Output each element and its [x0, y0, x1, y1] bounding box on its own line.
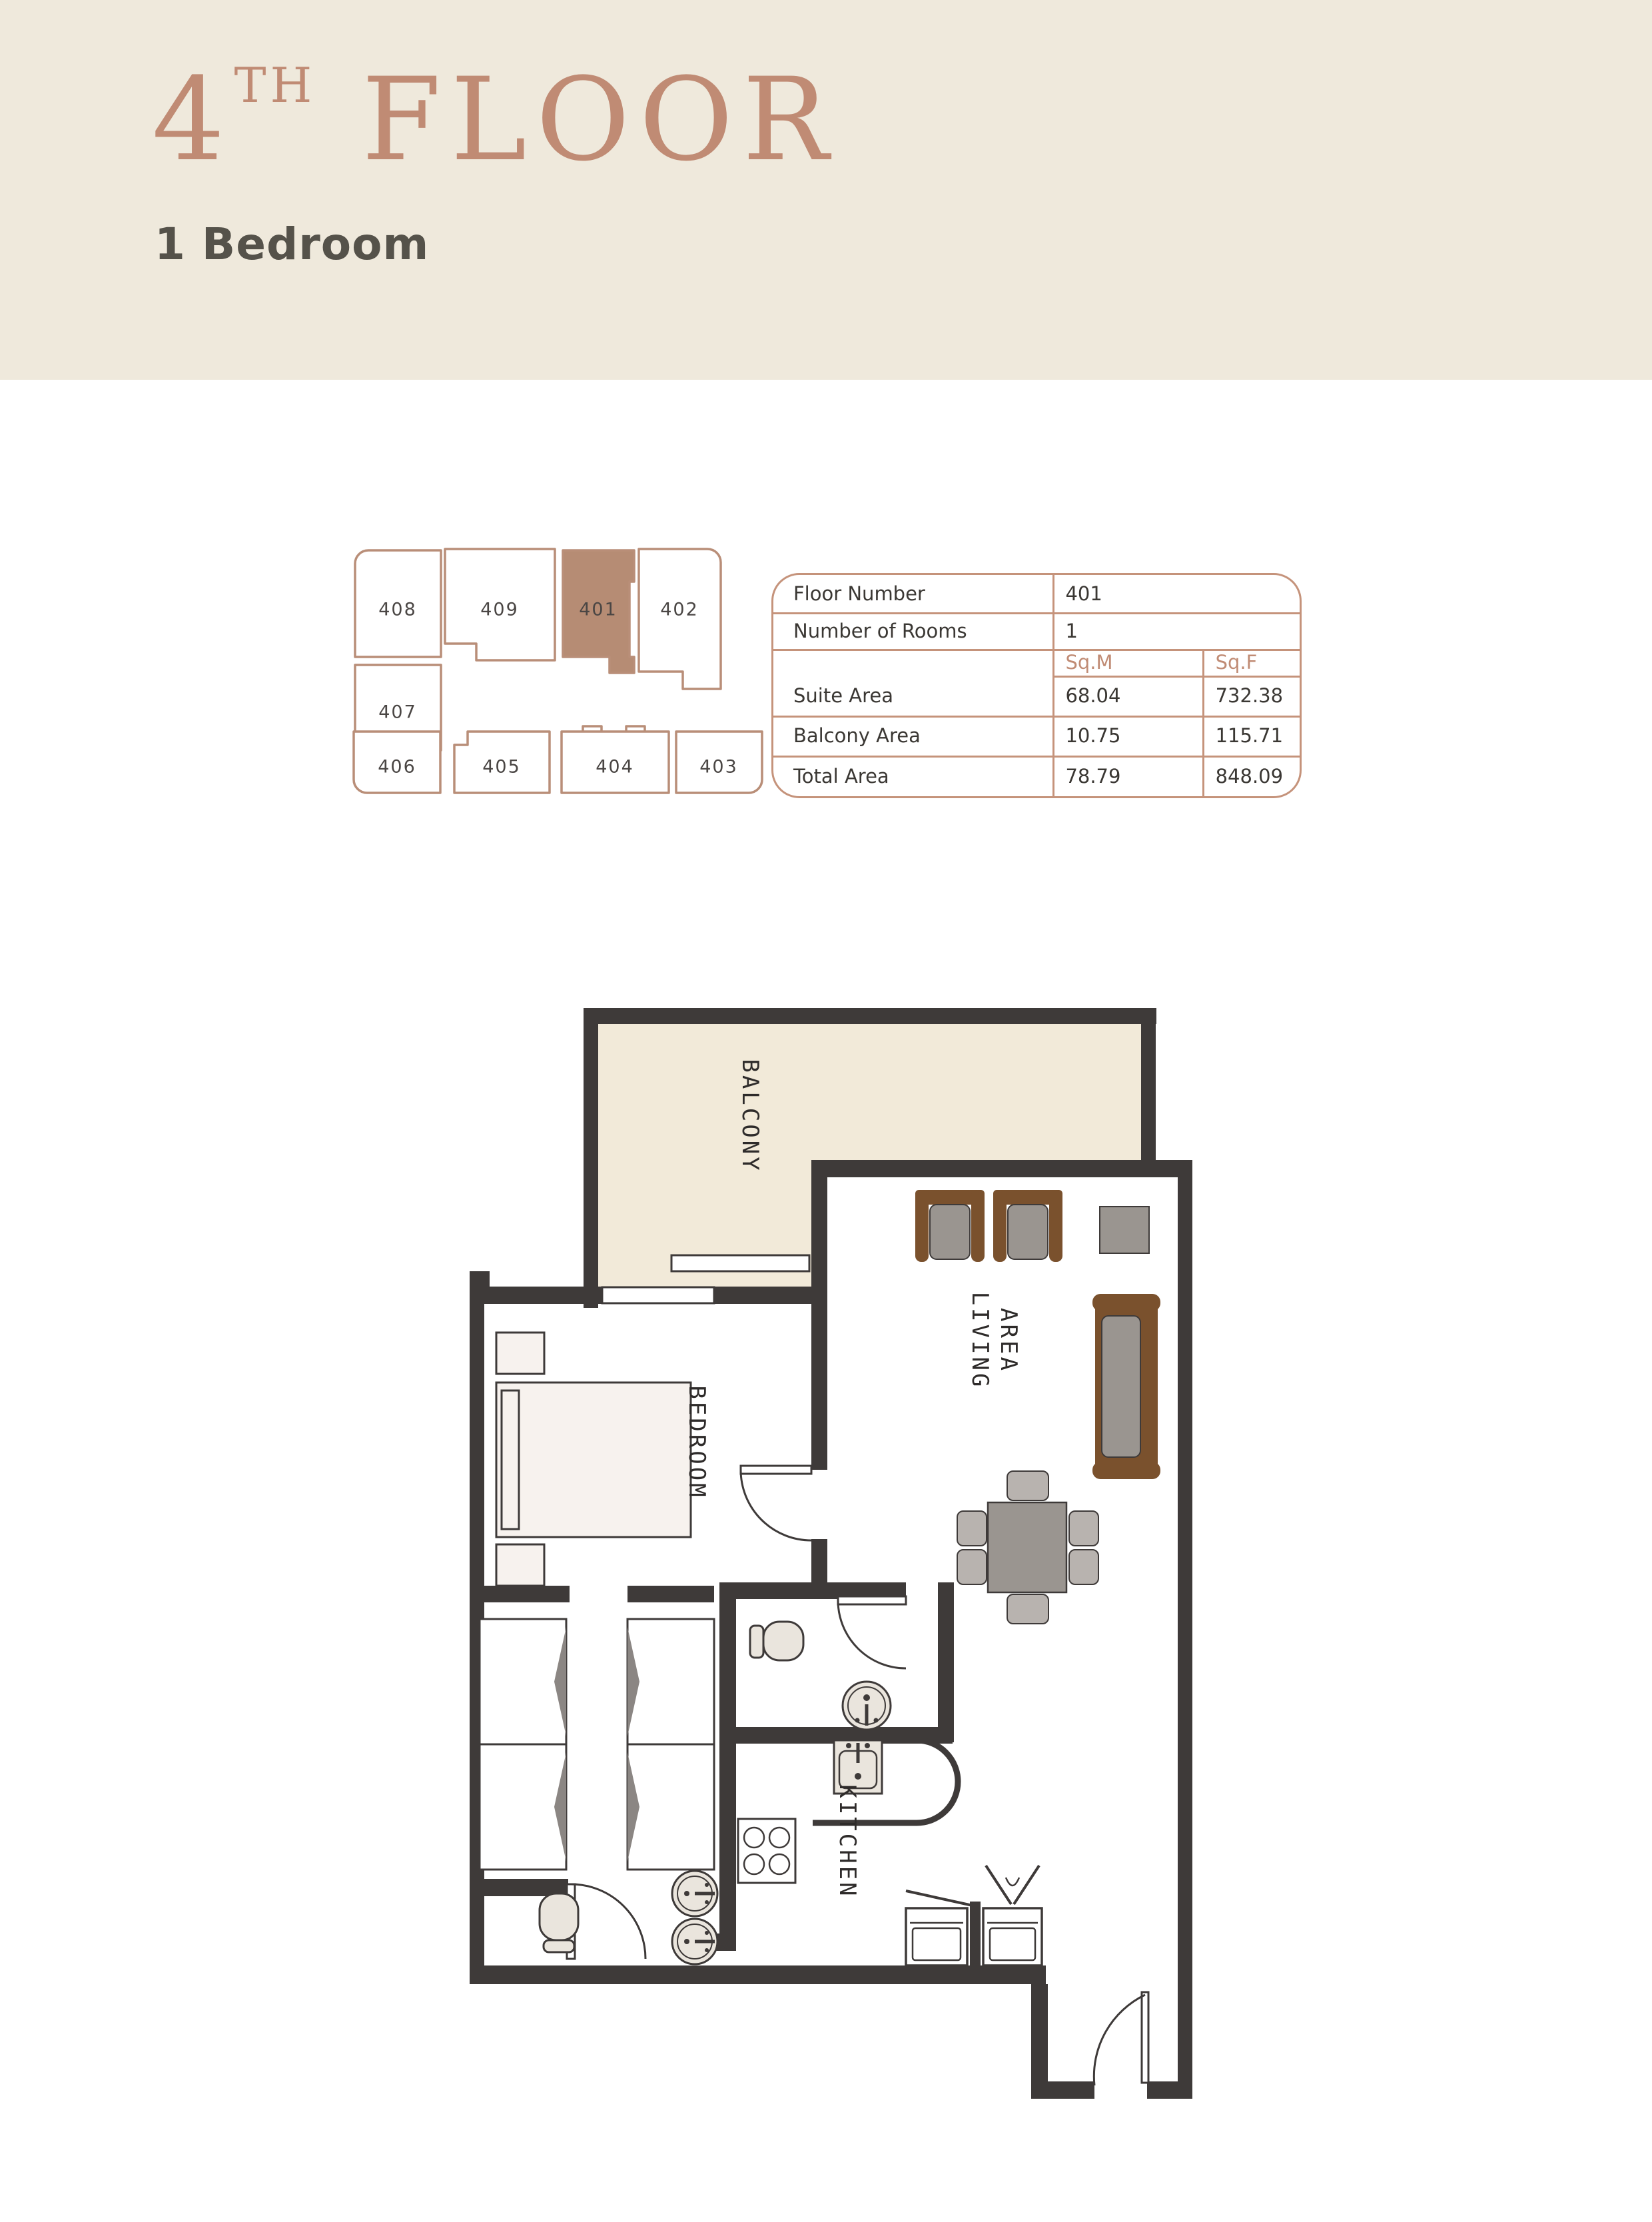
keyplan-label-404: 404 [596, 757, 634, 778]
drain-dot [855, 1773, 861, 1780]
living-furniture [915, 1190, 1160, 1624]
dining-chair [1069, 1550, 1098, 1584]
keyplan-label-408: 408 [378, 600, 417, 620]
wall-appliance-stub [970, 1902, 981, 1965]
floor-number-label: Floor Number [793, 575, 925, 612]
wall-bedroom-living-divider [811, 1177, 827, 1470]
rooms-value: 1 [1065, 612, 1077, 649]
dining-set [957, 1471, 1098, 1624]
keyplan-diagram: 408 409 401 402 407 406 405 404 403 [346, 545, 766, 798]
label-living-line1: LIVING [967, 1292, 993, 1390]
armchair [993, 1190, 1062, 1262]
stove [738, 1819, 795, 1883]
wall-balcony-top [584, 1008, 1156, 1024]
nightstand-bottom [496, 1544, 544, 1586]
ensuite-bathroom [750, 1622, 891, 1730]
wall-living-top [811, 1160, 1192, 1177]
toilet-tank [750, 1626, 763, 1658]
balcony-area-sqf: 115.71 [1216, 716, 1283, 756]
sqf-header: Sq.F [1216, 649, 1258, 676]
sqm-header: Sq.M [1065, 649, 1112, 676]
balcony-slider-window [671, 1255, 809, 1271]
title-ordinal-suffix: TH [234, 57, 316, 113]
balcony-area-sqm: 10.75 [1065, 716, 1120, 756]
label-balcony: BALCONY [737, 1059, 763, 1173]
dining-table [988, 1502, 1066, 1592]
dining-chair [957, 1550, 987, 1584]
total-area-sqf: 848.09 [1216, 756, 1283, 796]
label-bedroom: BEDROOM [683, 1385, 710, 1499]
title-word: FLOOR [316, 53, 838, 187]
wall-bedroom-bottom-right [627, 1586, 714, 1602]
wall-balcony-right [1141, 1024, 1156, 1161]
toilet-tank [544, 1940, 574, 1952]
title-floor-number: 4 [152, 53, 234, 187]
keyplan-label-405: 405 [482, 757, 521, 778]
armchair [915, 1190, 985, 1262]
dining-chair [1007, 1594, 1048, 1624]
rooms-label: Number of Rooms [793, 612, 967, 649]
faucet-dot [855, 1718, 860, 1723]
toilet-bowl [540, 1894, 578, 1940]
wall-corner-stub [470, 1271, 490, 1288]
dryer [983, 1908, 1042, 1965]
faucet-dot [846, 1743, 851, 1748]
side-table [1100, 1207, 1149, 1253]
bed-headboard [502, 1390, 519, 1529]
nightstand-top [496, 1333, 544, 1374]
wall-vestibule-left [1031, 1984, 1048, 2099]
closet-door-line [906, 1891, 973, 1906]
bedroom-door-leaf [741, 1466, 811, 1474]
bath2-door-arc [571, 1884, 645, 1959]
faucet-dot [874, 1718, 879, 1723]
wall-divider-below-door [811, 1539, 827, 1582]
table-divider [1052, 575, 1054, 796]
sofa [1092, 1294, 1160, 1479]
ensuite-door-arc [838, 1600, 906, 1668]
page-title: 4TH FLOOR [152, 40, 838, 200]
sink-unit [672, 1919, 717, 1964]
unit-info-table: Floor Number 401 Number of Rooms 1 Sq.M … [771, 573, 1302, 798]
wall-vestibule-bottom-left [1048, 2081, 1094, 2099]
dining-chair [1069, 1511, 1098, 1546]
washer [906, 1908, 967, 1965]
wall-main-bottom [470, 1965, 1046, 1984]
wardrobe [480, 1744, 566, 1870]
entrance-door-leaf [1142, 1992, 1148, 2083]
wall-ensuite-right [938, 1582, 954, 1742]
floorplan-drawing: BALCONY BEDROOM LIVING AREA KITCHEN [440, 953, 1192, 2105]
page-subtitle: 1 Bedroom [155, 219, 429, 270]
bedroom-door-arc [741, 1470, 811, 1540]
label-kitchen: KITCHEN [834, 1784, 861, 1898]
wall-bedroom-top-right [714, 1287, 827, 1304]
suite-area-sqm: 68.04 [1065, 676, 1120, 716]
entrance-door-arc [1094, 1995, 1145, 2085]
table-divider [1202, 649, 1204, 796]
floorplan-brochure-page: 4TH FLOOR 1 Bedroom 408 409 401 402 407 … [0, 0, 1652, 2222]
keyplan-label-401: 401 [579, 600, 618, 620]
balcony-area-label: Balcony Area [793, 716, 921, 756]
wardrobe [627, 1744, 714, 1870]
bedroom-window [602, 1287, 714, 1303]
suite-area-sqf: 732.38 [1216, 676, 1283, 716]
label-living-line2: AREA [995, 1308, 1022, 1373]
keyplan-label-402: 402 [660, 600, 699, 620]
sink-unit [672, 1871, 717, 1916]
dining-chair [1007, 1471, 1048, 1500]
bifold-door-curl [1006, 1878, 1019, 1886]
keyplan-label-406: 406 [378, 757, 416, 778]
bed [496, 1383, 691, 1537]
floor-number-value: 401 [1065, 575, 1102, 612]
wall-bedroom-top-left [470, 1287, 602, 1304]
total-area-label: Total Area [793, 756, 889, 796]
dining-chair [957, 1511, 987, 1546]
suite-area-label: Suite Area [793, 676, 893, 716]
keyplan-label-407: 407 [378, 702, 417, 723]
toilet-bowl [763, 1622, 803, 1660]
wall-vestibule-bottom-right [1147, 2081, 1192, 2099]
keyplan-label-409: 409 [480, 600, 519, 620]
wall-right-outer [1178, 1160, 1192, 2099]
wall-ensuite-kitchen-left [719, 1582, 736, 1934]
header-band: 4TH FLOOR 1 Bedroom [0, 0, 1652, 380]
wall-balcony-left [584, 1008, 598, 1308]
total-area-sqm: 78.79 [1065, 756, 1120, 796]
wardrobe [627, 1619, 714, 1744]
faucet-dot [865, 1743, 870, 1748]
wardrobe [480, 1619, 566, 1744]
ensuite-door-leaf [838, 1596, 906, 1604]
keyplan-label-403: 403 [699, 757, 738, 778]
wall-bedroom-bottom-left [470, 1586, 570, 1602]
faucet-dot [863, 1694, 870, 1701]
